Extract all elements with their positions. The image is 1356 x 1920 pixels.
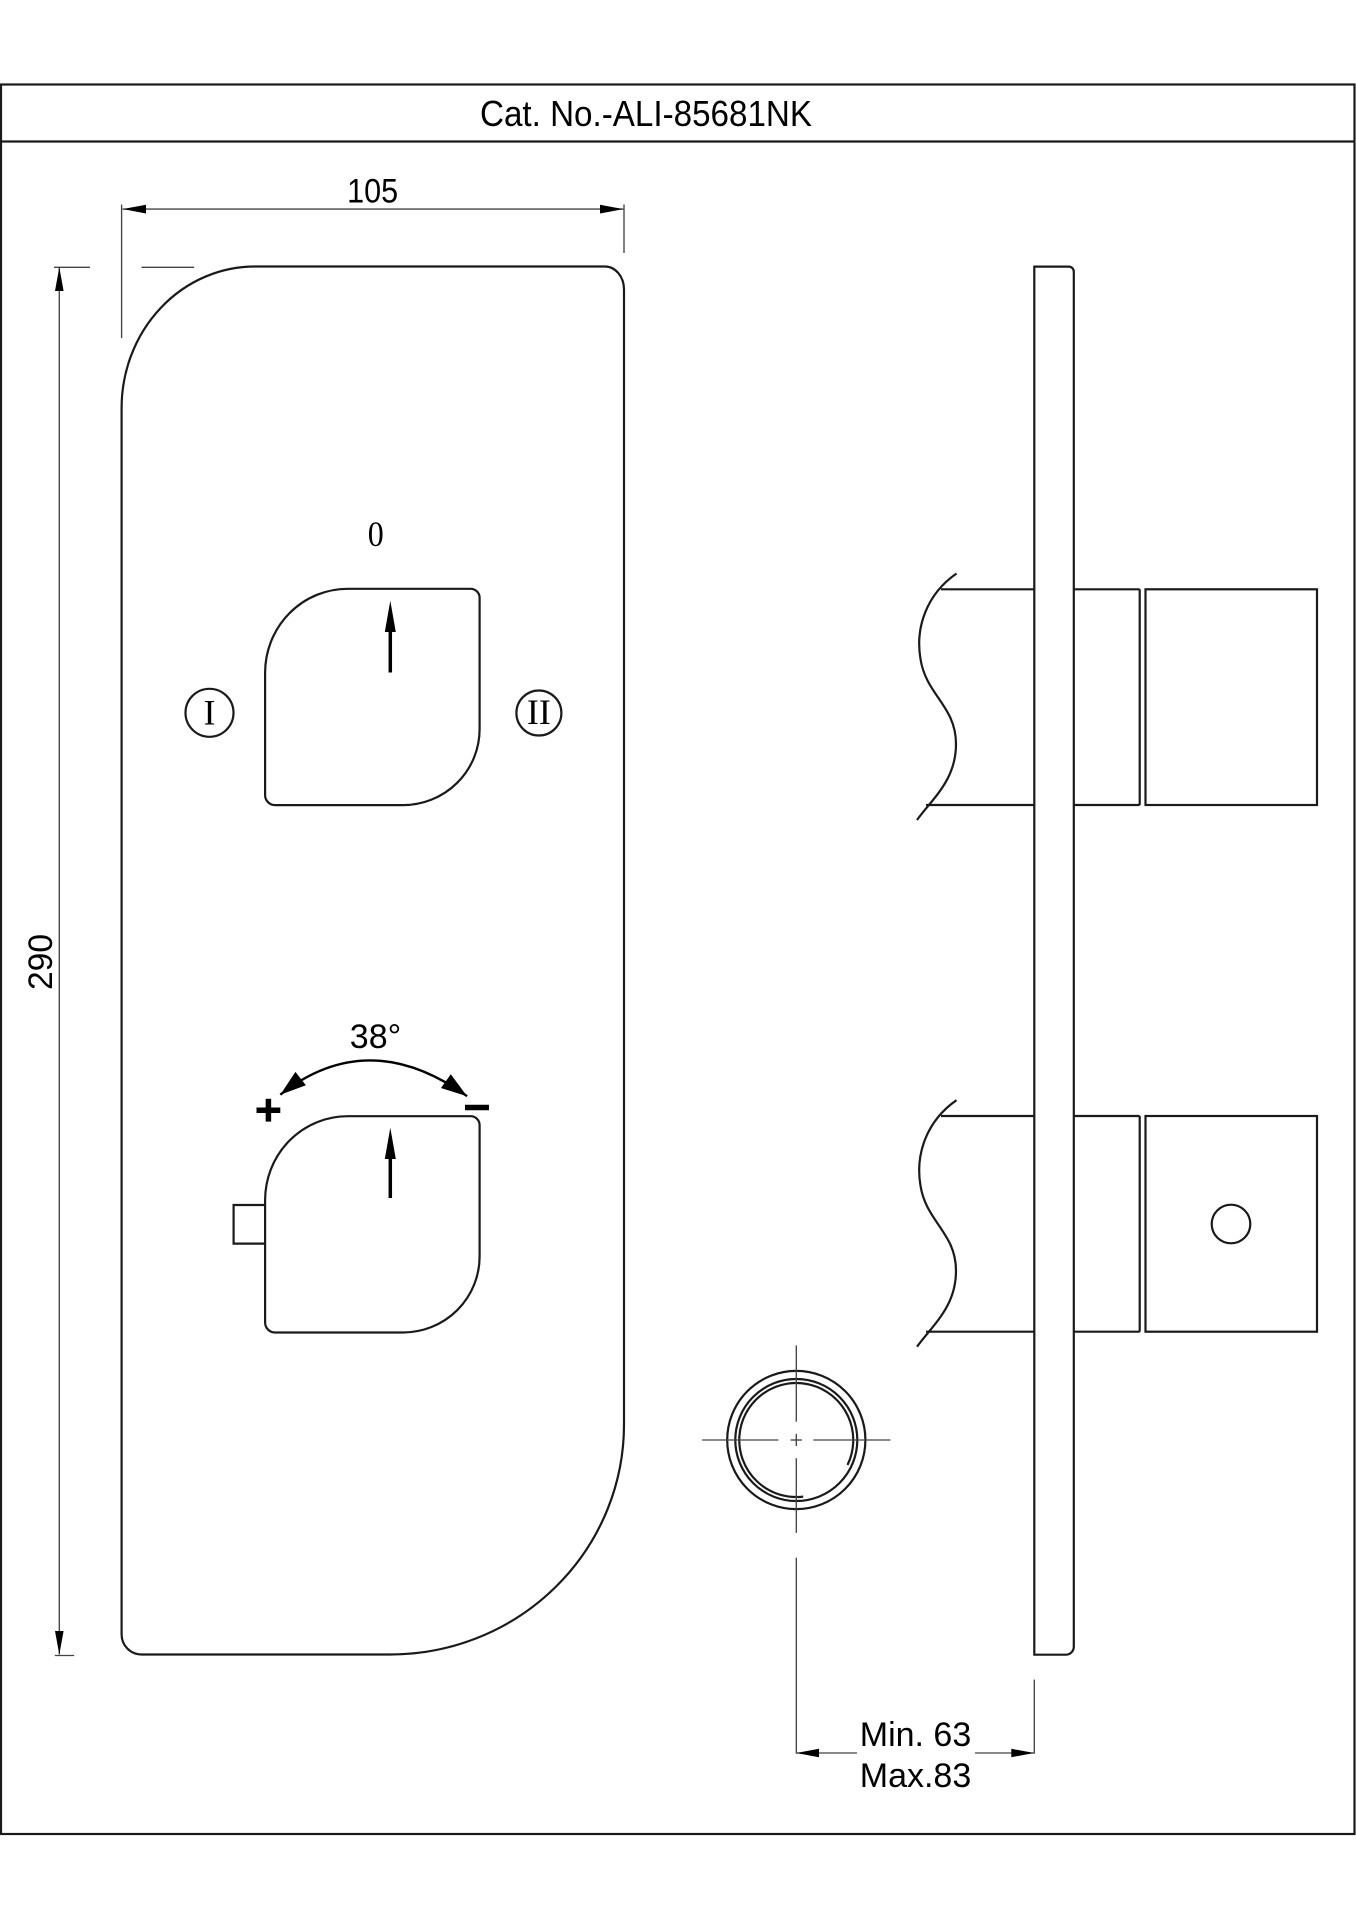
svg-text:290: 290	[22, 934, 60, 990]
svg-text:38°: 38°	[350, 1018, 401, 1056]
svg-text:105: 105	[347, 173, 398, 211]
svg-text:Max.83: Max.83	[860, 1757, 972, 1795]
svg-text:Min. 63: Min. 63	[860, 1716, 972, 1754]
svg-text:I: I	[204, 693, 216, 733]
svg-text:Cat. No.-ALI-85681NK: Cat. No.-ALI-85681NK	[480, 93, 812, 134]
svg-text:0: 0	[368, 514, 384, 554]
svg-text:II: II	[527, 692, 551, 732]
